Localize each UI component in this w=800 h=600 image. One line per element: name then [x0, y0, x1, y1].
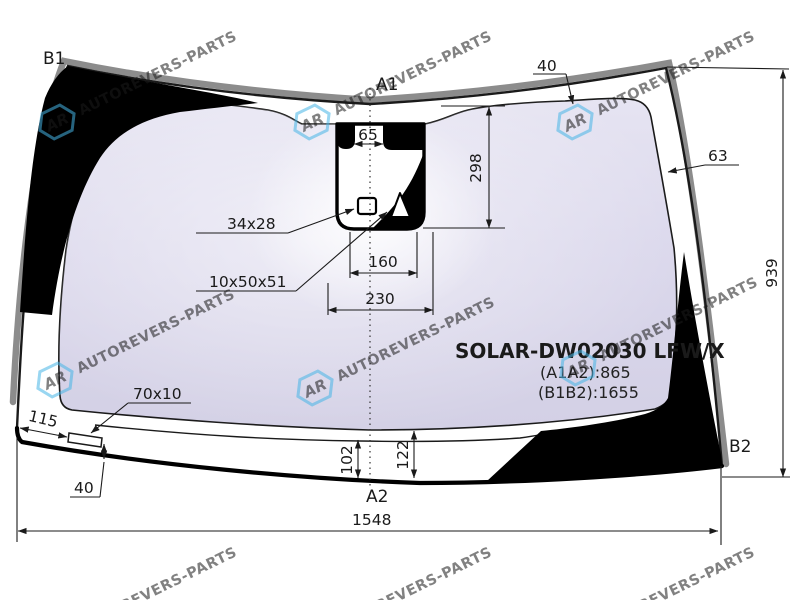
- label-bracket-size: 10x50x51: [209, 273, 287, 291]
- dim-text-160: 160: [368, 253, 398, 271]
- dim-text-63: 63: [708, 147, 728, 165]
- watermark-text: AUTOREVERS-PARTS: [331, 544, 494, 600]
- bracket-tab-left: [337, 123, 355, 149]
- dim-text-40-top: 40: [537, 57, 557, 75]
- dim-text-40-bottom: 40: [74, 479, 94, 497]
- dim-side-gap-63: [668, 165, 739, 172]
- dim-text-65: 65: [358, 126, 378, 144]
- watermark: ARAUTOREVERS-PARTS: [552, 538, 760, 600]
- camera-bracket: [337, 123, 424, 229]
- diagram-canvas: 1548 939 298 65 160 230 102 122 40 63 34…: [0, 0, 800, 600]
- watermark-text: AUTOREVERS-PARTS: [594, 544, 757, 600]
- label-sensor-size: 34x28: [227, 215, 276, 233]
- dim-text-1548: 1548: [352, 511, 391, 529]
- bracket-tab-right: [383, 123, 424, 150]
- dim-text-115: 115: [27, 407, 60, 431]
- dim-text-939: 939: [763, 258, 781, 288]
- dim-text-122: 122: [394, 440, 412, 470]
- dim-text-102: 102: [338, 445, 356, 475]
- dim-text-230: 230: [365, 290, 395, 308]
- sensor-window: [358, 198, 376, 214]
- moulding-strip: [68, 433, 102, 447]
- windshield-diagram: 1548 939 298 65 160 230 102 122 40 63 34…: [0, 0, 800, 600]
- marker-b2: B2: [729, 437, 751, 457]
- dim-strip-offset-115: [20, 428, 67, 437]
- watermark: ARAUTOREVERS-PARTS: [34, 538, 242, 600]
- marker-b1: B1: [43, 49, 65, 69]
- part-number: SOLAR-DW02030 LFW/X: [455, 339, 725, 363]
- marker-a2: A2: [366, 487, 388, 507]
- watermark-text: AUTOREVERS-PARTS: [76, 544, 239, 600]
- label-strip-size: 70x10: [133, 385, 182, 403]
- dim-text-298: 298: [467, 153, 485, 183]
- watermark: ARAUTOREVERS-PARTS: [289, 538, 497, 600]
- part-dim-b1b2: (B1B2):1655: [538, 383, 639, 402]
